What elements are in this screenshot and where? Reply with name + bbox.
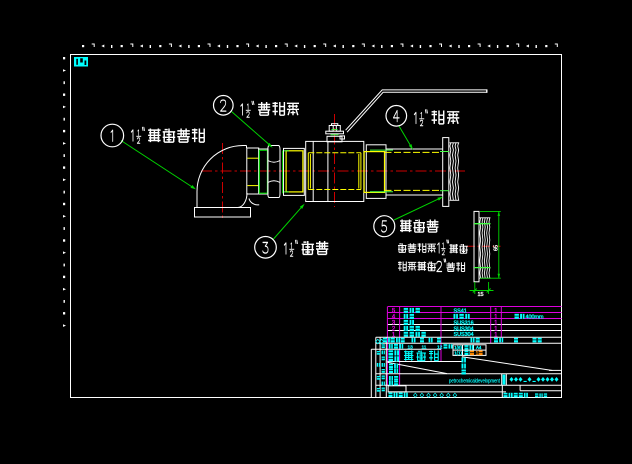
- svg-text:1(1): 1(1): [454, 351, 462, 356]
- svg-text:400mm: 400mm: [526, 315, 544, 321]
- svg-text:1: 1: [476, 351, 479, 357]
- svg-text:13: 13: [408, 344, 414, 350]
- svg-text:1(6): 1(6): [454, 345, 462, 350]
- svg-text:11: 11: [422, 344, 427, 350]
- svg-text:petrochemicaldevelopment: petrochemicaldevelopment: [449, 378, 501, 384]
- svg-text:15: 15: [478, 292, 484, 298]
- svg-text:A4: A4: [476, 345, 482, 350]
- svg-text:65: 65: [494, 245, 500, 251]
- svg-text:SS41: SS41: [454, 308, 467, 314]
- svg-text:12: 12: [437, 344, 443, 350]
